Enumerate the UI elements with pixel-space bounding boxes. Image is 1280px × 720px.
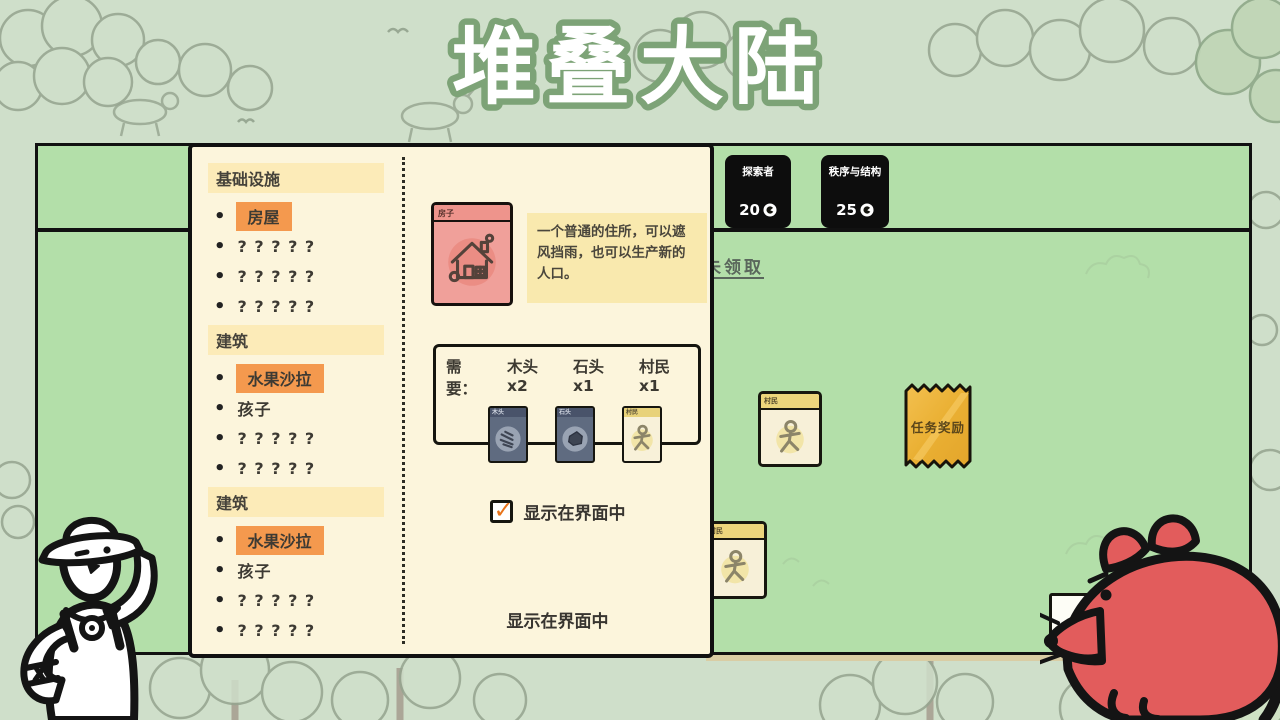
reward-pack-label: 任务奖励 — [901, 381, 975, 471]
section-header: 建筑 — [208, 325, 384, 355]
villager-icon — [706, 540, 764, 595]
list-item-unknown[interactable]: ? ? ? ? ? — [208, 645, 388, 654]
booster-pack-order-structure[interactable]: 秩序与结构 25 — [821, 155, 889, 228]
card-description: 一个普通的住所，可以遮风挡雨，也可以生产新的人口。 — [527, 213, 707, 303]
section-header: 基础设施 — [208, 163, 384, 193]
cardopedia-detail: 房子 一个普通的住所，可以遮风挡雨 — [402, 157, 710, 644]
house-card-preview: 房子 — [431, 202, 513, 306]
cardopedia-list: 基础设施 房屋 ? ? ? ? ? ? ? ? ? ? ? ? ? ? ? 建筑… — [192, 147, 402, 654]
list-item-selected[interactable]: 水果沙拉 — [208, 363, 388, 393]
list-item-unknown[interactable]: ? ? ? ? ? — [208, 585, 388, 615]
list-item-unknown[interactable]: ? ? ? ? ? — [208, 453, 388, 483]
list-item-unknown[interactable]: ? ? ? ? ? — [208, 615, 388, 645]
coin-icon — [860, 203, 874, 217]
villager-card[interactable]: 村民 — [758, 391, 822, 467]
pack-price: 25 — [836, 201, 874, 219]
show-in-ui-toggle[interactable]: 显示在界面中 — [405, 499, 710, 524]
card-title: 房子 — [434, 205, 510, 222]
pack-name: 秩序与结构 — [829, 167, 882, 179]
pack-name: 探索者 — [742, 167, 774, 179]
list-item[interactable]: 孩子 — [208, 393, 388, 423]
rat-doodle — [1040, 503, 1280, 720]
list-item-unknown[interactable]: ? ? ? ? ? — [208, 423, 388, 453]
house-icon — [434, 222, 510, 300]
checkbox-label: 显示在界面中 — [524, 499, 626, 524]
requirements-label: 需要： — [446, 355, 490, 399]
checkbox-checked-icon[interactable] — [490, 500, 513, 523]
requirement-villager: 村民x1 — [639, 355, 688, 399]
pack-price: 20 — [739, 201, 777, 219]
card-title: 村民 — [761, 394, 819, 410]
list-item-selected[interactable]: 水果沙拉 — [208, 525, 388, 555]
explorer-doodle — [0, 498, 180, 720]
show-in-ui-footer-button[interactable]: 显示在界面中 — [405, 607, 710, 632]
requirement-mini-cards: 木头 石头 — [488, 406, 688, 463]
list-item[interactable]: 孩子 — [208, 555, 388, 585]
stone-icon — [557, 417, 593, 461]
booster-pack-explorers[interactable]: 探索者 20 — [725, 155, 791, 228]
quest-reward-pack[interactable]: 任务奖励 — [901, 381, 975, 471]
list-item-selected[interactable]: 房屋 — [208, 201, 388, 231]
villager-icon — [761, 410, 819, 465]
villager-mini-card: 村民 — [622, 406, 662, 463]
requirement-stone: 石头x1 — [573, 355, 622, 399]
wood-mini-card: 木头 — [488, 406, 528, 463]
wood-icon — [490, 417, 526, 461]
card-title: 村民 — [706, 524, 764, 540]
villager-icon — [624, 417, 660, 461]
list-item-unknown[interactable]: ? ? ? ? ? — [208, 261, 388, 291]
list-item-unknown[interactable]: ? ? ? ? ? — [208, 231, 388, 261]
list-item-unknown[interactable]: ? ? ? ? ? — [208, 291, 388, 321]
requirement-wood: 木头x2 — [507, 355, 556, 399]
coin-icon — [763, 203, 777, 217]
section-header: 建筑 — [208, 487, 384, 517]
stone-mini-card: 石头 — [555, 406, 595, 463]
cardopedia-panel: 基础设施 房屋 ? ? ? ? ? ? ? ? ? ? ? ? ? ? ? 建筑… — [188, 143, 714, 658]
requirements-line: 需要： 木头x2 石头x1 村民x1 — [446, 355, 688, 399]
requirements-box: 需要： 木头x2 石头x1 村民x1 木头 — [433, 344, 701, 445]
